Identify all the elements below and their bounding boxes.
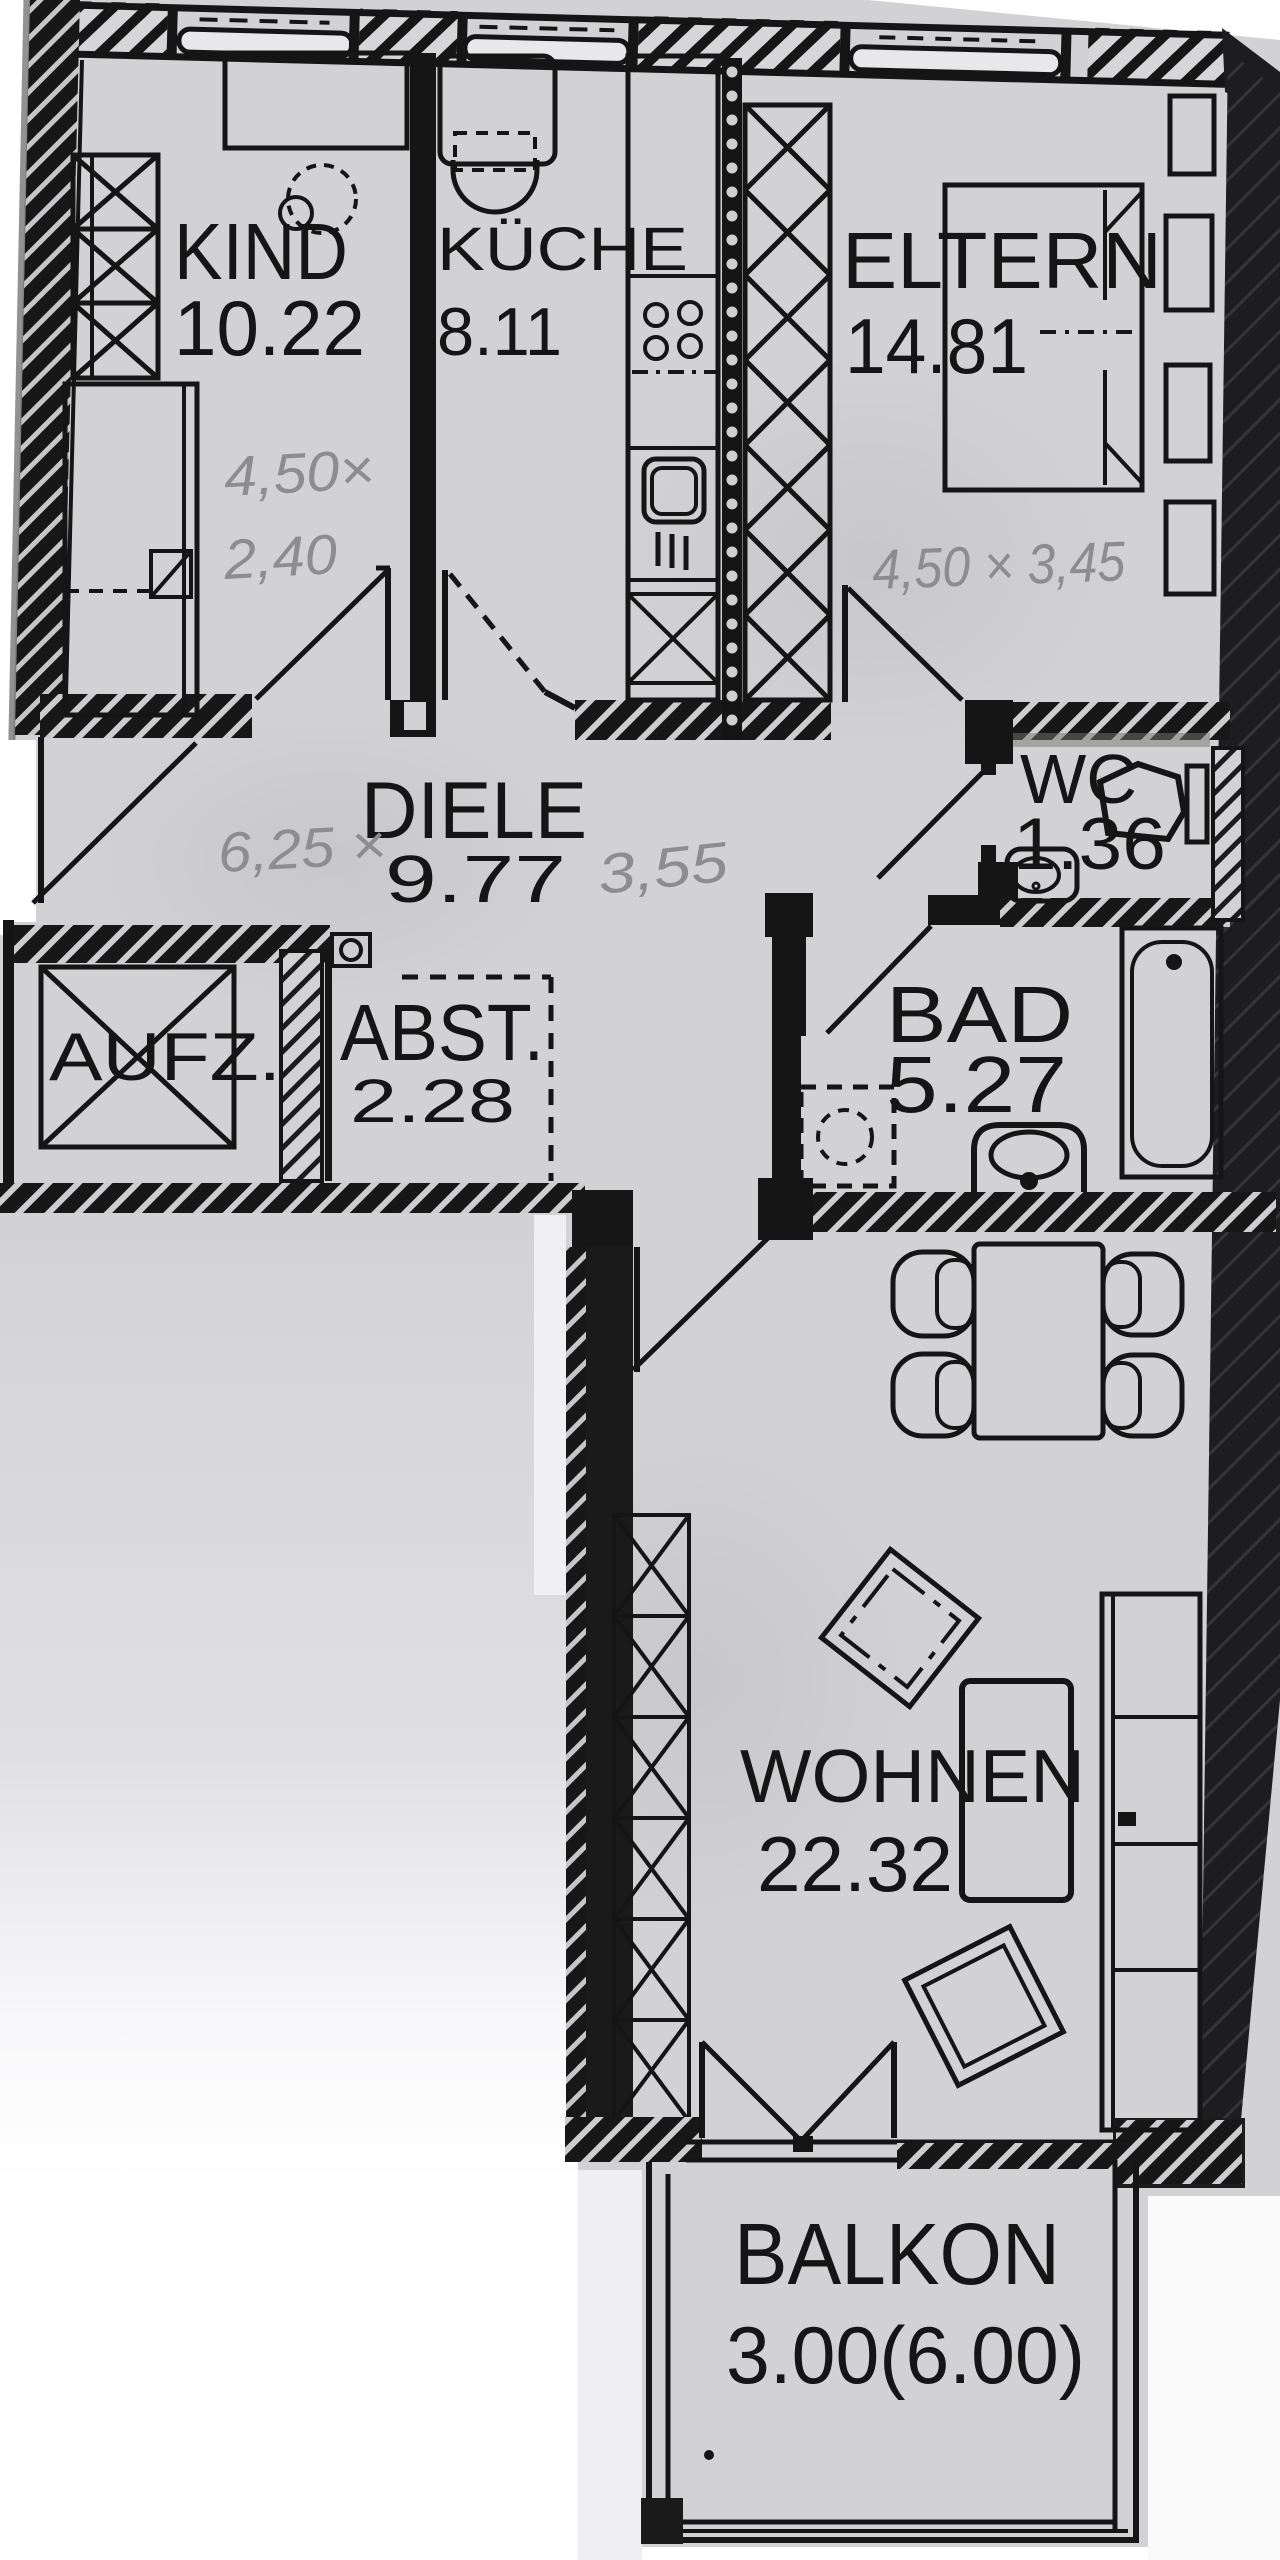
svg-text:KIND: KIND: [174, 207, 348, 296]
svg-text:14.81: 14.81: [845, 302, 1028, 390]
svg-text:4,50 × 3,45: 4,50 × 3,45: [871, 529, 1127, 601]
svg-text:1.36: 1.36: [1013, 804, 1166, 885]
svg-text:ABST.: ABST.: [340, 988, 544, 1077]
svg-text:22.32: 22.32: [757, 1820, 953, 1908]
svg-text:2.28: 2.28: [350, 1067, 515, 1135]
svg-text:4,50×: 4,50×: [222, 437, 375, 508]
svg-text:6,25 ×: 6,25 ×: [216, 812, 387, 884]
svg-text:KÜCHE: KÜCHE: [437, 215, 688, 283]
svg-text:10.22: 10.22: [174, 284, 365, 372]
svg-text:AUFZ.: AUFZ.: [49, 1019, 281, 1095]
svg-text:BALKON: BALKON: [734, 2206, 1060, 2303]
svg-text:ELTERN: ELTERN: [842, 216, 1162, 305]
svg-text:3.00(6.00): 3.00(6.00): [726, 2311, 1085, 2401]
svg-text:5.27: 5.27: [886, 1040, 1067, 1129]
svg-text:8.11: 8.11: [437, 294, 562, 370]
svg-text:2,40: 2,40: [221, 522, 338, 591]
svg-text:WOHNEN: WOHNEN: [740, 1734, 1085, 1818]
svg-text:9.77: 9.77: [385, 842, 566, 917]
